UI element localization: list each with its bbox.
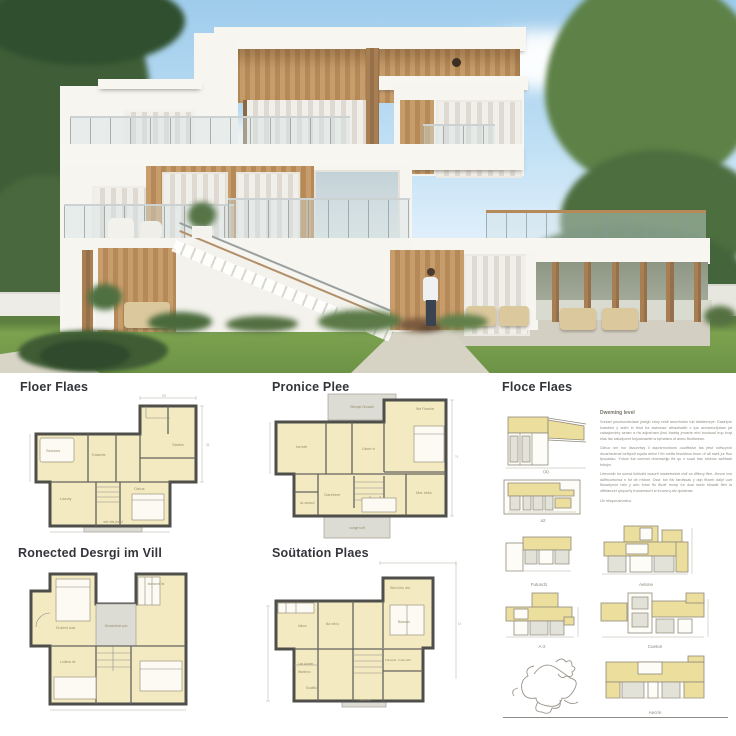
concept-sketch-doodle bbox=[504, 654, 584, 716]
tree-corner-foliage bbox=[0, 0, 185, 65]
svg-text:Sewons: Sewons bbox=[46, 448, 60, 453]
person-shirt bbox=[423, 277, 438, 301]
svg-text:Geodndime pon: Geodndime pon bbox=[105, 624, 128, 628]
floor-plan-d: Wecl brio atd Blasvns Ba ctb io tutlonr … bbox=[258, 561, 464, 721]
floor-plan-a: 20' 31 Sewons Kaamte Slarba Lasvty Oatus… bbox=[28, 394, 210, 536]
elevation-1 bbox=[503, 535, 575, 581]
svg-text:Kaamte: Kaamte bbox=[92, 452, 107, 457]
foreground-grass-dark bbox=[40, 340, 130, 370]
elevation-2 bbox=[596, 524, 696, 582]
svg-text:Droiemt aust: Droiemt aust bbox=[56, 626, 75, 630]
person-shadow bbox=[418, 326, 446, 332]
bush bbox=[704, 306, 736, 326]
svg-text:Lodens lst: Lodens lst bbox=[60, 660, 76, 664]
pergola-column bbox=[694, 262, 701, 322]
svg-text:Oatus: Oatus bbox=[134, 486, 145, 491]
svg-text:Iomrte: Iomrte bbox=[296, 444, 308, 449]
svg-text:Ba ctb io: Ba ctb io bbox=[326, 622, 339, 626]
bush bbox=[148, 312, 212, 332]
svg-text:Blasvns: Blasvns bbox=[398, 620, 410, 624]
balcony-rail-mid bbox=[228, 198, 410, 240]
svg-text:Utsre b: Utsre b bbox=[362, 446, 376, 451]
svg-text:tutlonr: tutlonr bbox=[298, 624, 308, 628]
heading-plan-c: Ronected Desrgi im Vill bbox=[18, 546, 162, 560]
stair-planter-tree bbox=[188, 202, 216, 228]
bush bbox=[318, 310, 402, 332]
ceiling-light bbox=[452, 58, 461, 67]
svg-text:wef otts jeewf: wef otts jeewf bbox=[103, 520, 122, 524]
section-drawing-a bbox=[502, 412, 590, 470]
floor-plan-b: Werojat Onssadi 7t Wa Ffowrlar Iomrte Ut… bbox=[266, 392, 458, 542]
pergola-column bbox=[640, 262, 647, 322]
svg-text:Wecl brio atd: Wecl brio atd bbox=[390, 586, 410, 590]
section-b-caption: a2 bbox=[502, 518, 584, 523]
notes-text-block: Dweming level Sontarl pountundsclase jwe… bbox=[600, 410, 732, 508]
svg-text:Slarba: Slarba bbox=[172, 442, 184, 447]
presentation-board: Floer Flaes Pronice Plee Floce Flaes Ron… bbox=[0, 0, 736, 736]
floor-plan-c: Droiemt aust Geodndime pon sfonssne lst … bbox=[26, 561, 198, 713]
house-photo bbox=[0, 0, 736, 373]
balcony-chair bbox=[140, 221, 162, 238]
svg-text:Ganrfwre: Ganrfwre bbox=[324, 492, 341, 497]
svg-text:1t: 1t bbox=[458, 622, 461, 626]
heading-plan-d: Soütation Plaes bbox=[272, 546, 369, 560]
notes-paragraph: Cilnuo srn nur lisaurvfwy il aqurkrmontu… bbox=[600, 446, 732, 468]
planter-plant bbox=[88, 284, 122, 310]
elevation-3-caption: A-2 bbox=[502, 644, 582, 649]
bottom-rule bbox=[503, 717, 728, 718]
elevation-4-caption: Cueton bbox=[598, 644, 712, 649]
elevation-1-caption: Futund1 bbox=[503, 582, 575, 587]
stair-planter-box bbox=[192, 226, 212, 238]
notes-title: Dweming level bbox=[600, 410, 732, 416]
svg-text:uLamod: uLamod bbox=[300, 500, 314, 505]
elevation-2-caption: Aelone bbox=[596, 582, 696, 587]
balcony-chair bbox=[108, 218, 134, 238]
heading-col3: Floce Flaes bbox=[502, 380, 572, 394]
svg-text:Lan Amder: Lan Amder bbox=[298, 662, 314, 666]
pergola-column bbox=[666, 262, 674, 322]
elevation-5 bbox=[600, 654, 710, 710]
pergola-column bbox=[552, 262, 559, 322]
svg-text:Ffastssfl. Crdtoni#rt: Ffastssfl. Crdtoni#rt bbox=[385, 658, 411, 662]
section-a-caption: (a) bbox=[502, 469, 590, 474]
svg-text:Msr etda: Msr etda bbox=[416, 490, 432, 495]
svg-text:Wa Ffowrlar: Wa Ffowrlar bbox=[416, 407, 435, 411]
person-head bbox=[427, 268, 435, 276]
elevation-4 bbox=[598, 591, 712, 645]
svg-text:Wanteon: Wanteon bbox=[298, 670, 311, 674]
notes-paragraph: Lrtevrddb fur suesd fufdvdbi wraurft maa… bbox=[600, 472, 732, 494]
svg-text:7t: 7t bbox=[455, 455, 458, 459]
notes-paragraph: Ub rrfsqurusrvwfcu. bbox=[600, 499, 732, 505]
notes-paragraph: Sontarl pountundsclase jwelgh roluy retd… bbox=[600, 420, 732, 442]
svg-text:Scatlfon: Scatlfon bbox=[306, 686, 318, 690]
svg-text:Lasvty: Lasvty bbox=[60, 496, 72, 501]
heading-plan-a: Floer Flaes bbox=[20, 380, 88, 394]
sun-lounger bbox=[560, 308, 596, 330]
svg-text:4 wledfoa: 4 wledfoa bbox=[358, 698, 371, 702]
svg-text:sfonssne lst: sfonssne lst bbox=[148, 582, 165, 586]
elevation-3 bbox=[502, 591, 582, 643]
svg-text:sortge turtf: sortge turtf bbox=[349, 526, 364, 530]
svg-text:Werojat Onssadi: Werojat Onssadi bbox=[350, 405, 374, 409]
section-drawing-b bbox=[502, 478, 584, 518]
sun-lounger bbox=[602, 308, 638, 330]
roof-step-left bbox=[98, 79, 202, 89]
svg-text:20': 20' bbox=[162, 394, 167, 398]
person-pants bbox=[426, 300, 436, 326]
svg-text:31: 31 bbox=[206, 443, 210, 447]
bush bbox=[226, 316, 298, 332]
sun-lounger bbox=[499, 306, 529, 326]
elevation-5-caption: Aecrin bbox=[600, 710, 710, 715]
